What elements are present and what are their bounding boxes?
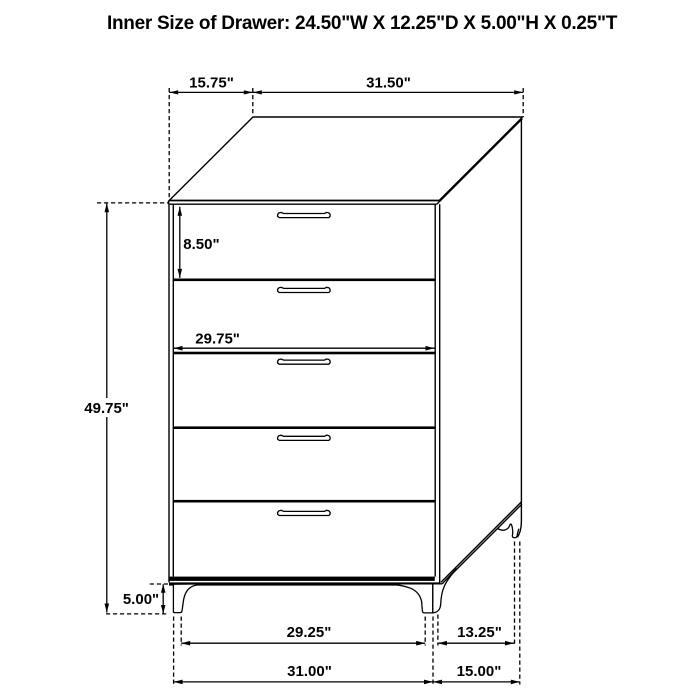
svg-text:29.75": 29.75" (195, 331, 240, 348)
svg-text:31.00": 31.00" (287, 663, 332, 680)
svg-text:Inner Size of Drawer: 24.50"W: Inner Size of Drawer: 24.50"W X 12.25"D … (107, 13, 618, 34)
svg-text:15.75": 15.75" (189, 74, 234, 91)
svg-text:49.75": 49.75" (84, 400, 129, 417)
svg-text:5.00": 5.00" (123, 591, 159, 608)
svg-text:31.50": 31.50" (366, 74, 411, 91)
svg-text:8.50": 8.50" (183, 236, 219, 253)
svg-text:13.25": 13.25" (457, 624, 502, 641)
svg-text:29.25": 29.25" (287, 624, 332, 641)
svg-text:15.00": 15.00" (457, 663, 502, 680)
